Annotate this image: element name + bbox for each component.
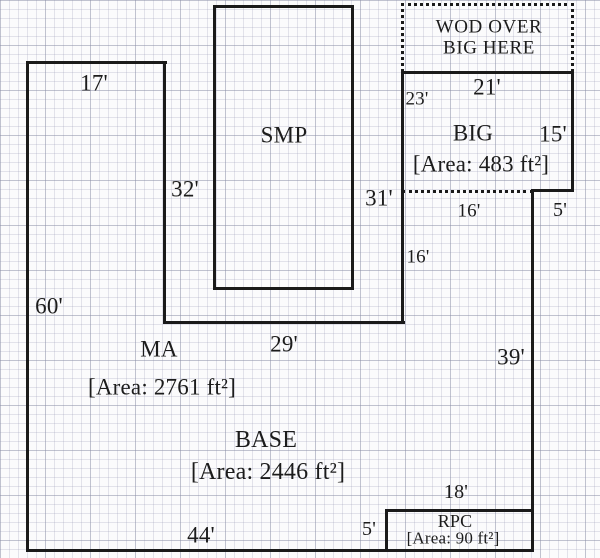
dim-mid-height: 31' — [365, 187, 393, 210]
dim-left-height: 60' — [35, 295, 63, 318]
rpc-area-label: [Area: 90 ft²] — [407, 530, 500, 547]
wall-left-wing-right — [163, 61, 166, 324]
dim-bottom-width: 44' — [187, 524, 215, 547]
dim-rpc-width: 18' — [444, 482, 468, 502]
big-room-label: BIG — [453, 122, 493, 145]
dim-rpc-height: 5' — [362, 519, 376, 539]
smp-room-outline — [213, 5, 354, 290]
wod-over-line1: WOD OVER — [436, 18, 543, 37]
ma-area-label: [Area: 2761 ft²] — [88, 376, 236, 399]
dim-big-top-width: 21' — [473, 76, 501, 99]
wall-rpc-left — [385, 509, 388, 552]
wall-left-main — [26, 61, 29, 552]
wall-right-main — [531, 190, 534, 552]
floor-plan-canvas: SMP BIG [Area: 483 ft²] WOD OVER BIG HER… — [0, 0, 600, 558]
dim-top-left-width: 17' — [80, 72, 108, 95]
dim-right-lower-height: 39' — [497, 346, 525, 369]
wall-bottom-main — [26, 549, 534, 552]
dim-right-upper-height: 16' — [406, 248, 429, 267]
floor-plan-page: { "title": "Floor plan sketch", "rooms":… — [0, 0, 600, 558]
big-bottom-dotted-line — [402, 190, 533, 193]
wall-mid-vertical — [401, 71, 404, 324]
base-room-label: BASE — [235, 428, 297, 452]
dim-big-step-width: 5' — [553, 200, 567, 220]
dim-left-wing-height: 32' — [171, 178, 199, 201]
rpc-room-label: RPC — [438, 512, 473, 530]
wall-left-wing-top — [26, 61, 167, 64]
smp-room-label: SMP — [261, 124, 308, 147]
dim-ma-bottom-width: 29' — [270, 333, 298, 356]
big-area-label: [Area: 483 ft²] — [413, 153, 549, 176]
ma-room-label: MA — [140, 338, 177, 361]
wall-big-step — [531, 189, 574, 192]
base-area-label: [Area: 2446 ft²] — [191, 460, 345, 484]
wall-ma-notch-bottom — [163, 321, 405, 324]
dim-big-right-height: 15' — [539, 123, 567, 146]
dim-big-left-height: 23' — [405, 90, 428, 109]
wall-big-right — [571, 71, 574, 192]
wod-over-line2: BIG HERE — [443, 39, 535, 58]
dim-big-bottom-width: 16' — [457, 202, 480, 221]
